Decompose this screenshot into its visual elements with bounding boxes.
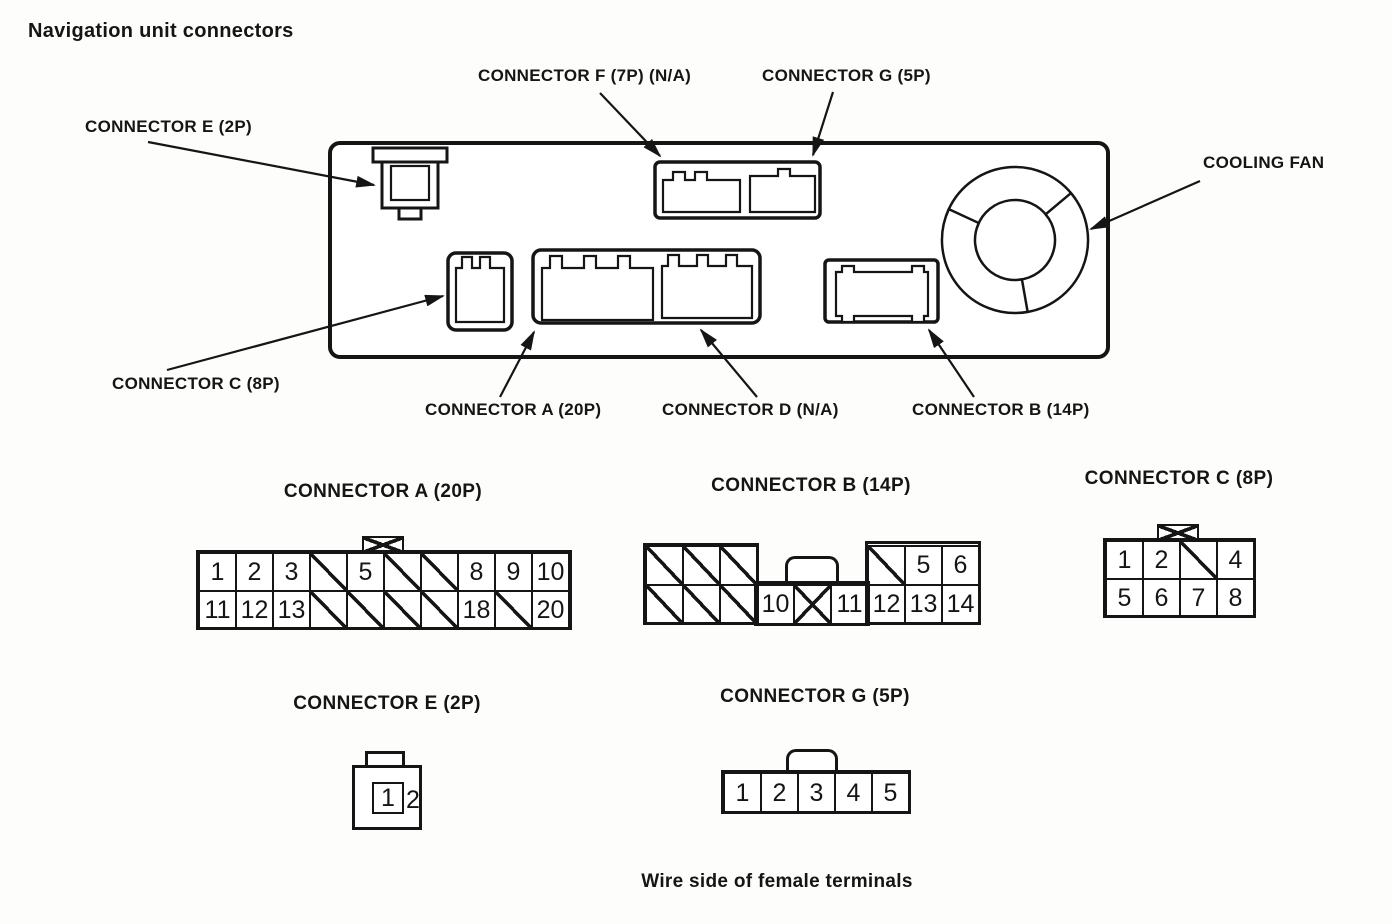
pinout-b-frame-middle [754,581,870,626]
connector-b-socket-drawing [825,260,938,322]
connector-e-socket-drawing [373,148,447,219]
page-title: Navigation unit connectors [28,20,294,43]
label-connector-d: CONNECTOR D (N/A) [662,400,839,420]
label-connector-e: CONNECTOR E (2P) [85,117,252,137]
footer-note: Wire side of female terminals [627,871,927,893]
arrow-connector-f [600,93,660,156]
pin-e-1: 1 [372,782,404,814]
scanned-page: { "page_title": "Navigation unit connect… [0,0,1392,924]
arrow-connector-g [813,92,833,155]
label-connector-a: CONNECTOR A (20P) [425,400,601,420]
nav-unit-outline [330,143,1108,357]
connector-c-socket-drawing [448,253,512,330]
label-connector-c: CONNECTOR C (8P) [112,374,280,394]
arrow-cooling-fan [1091,181,1200,229]
callout-arrows [148,92,1200,397]
pinout-b-title: CONNECTOR B (14P) [661,475,961,497]
pinout-b-frame-left [643,543,759,625]
unit-line-art [0,0,1392,924]
pinout-g-title: CONNECTOR G (5P) [665,686,965,708]
pinout-g-frame [721,770,911,814]
label-connector-b: CONNECTOR B (14P) [912,400,1090,420]
connector-a-d-socket-drawing [533,250,760,323]
pinout-c-title: CONNECTOR C (8P) [1029,468,1329,490]
pinout-a-frame [196,550,572,630]
label-connector-g: CONNECTOR G (5P) [762,66,931,86]
connector-f-g-socket-drawing [655,162,820,218]
pinout-a-title: CONNECTOR A (20P) [233,481,533,503]
arrow-connector-a [500,332,534,397]
arrow-connector-d [701,330,757,397]
pinout-c-frame [1103,538,1256,618]
connector-e-keyway-tab [365,751,405,766]
arrow-connector-c [167,296,443,370]
pinout-b-frame-right [865,541,981,625]
arrow-connector-b [929,330,974,397]
cooling-fan-drawing [922,167,1113,336]
pinout-e-title: CONNECTOR E (2P) [237,693,537,715]
arrow-connector-e [148,142,374,185]
label-cooling-fan: COOLING FAN [1203,153,1324,173]
pin-e-2: 2 [406,788,420,813]
label-connector-f: CONNECTOR F (7P) (N/A) [478,66,691,86]
